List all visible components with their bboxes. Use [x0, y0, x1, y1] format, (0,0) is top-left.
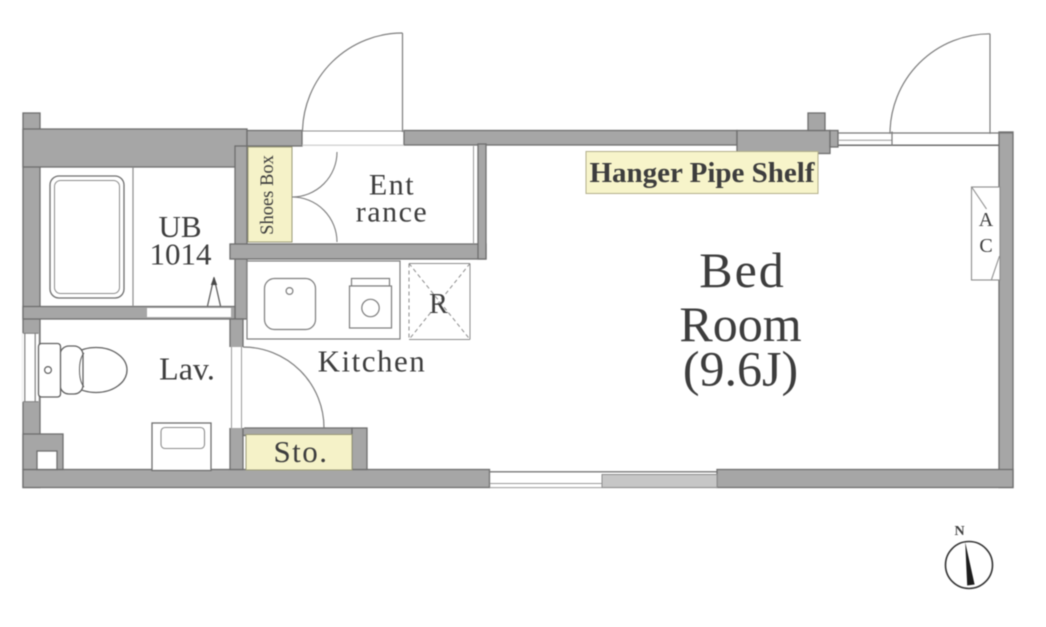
svg-text:Hanger Pipe Shelf: Hanger Pipe Shelf — [589, 157, 814, 189]
svg-text:1014: 1014 — [150, 237, 213, 272]
svg-text:R: R — [429, 289, 448, 320]
svg-text:Sto.: Sto. — [273, 434, 328, 469]
svg-text:N: N — [954, 524, 964, 539]
svg-text:rance: rance — [356, 196, 428, 229]
svg-text:(9.6J): (9.6J) — [683, 341, 798, 397]
svg-text:Lav.: Lav. — [159, 351, 215, 387]
svg-text:A: A — [979, 209, 994, 231]
svg-text:Shoes Box: Shoes Box — [258, 154, 278, 234]
svg-text:Bed: Bed — [699, 242, 786, 298]
svg-text:Kitchen: Kitchen — [318, 344, 427, 379]
svg-text:C: C — [979, 235, 992, 257]
